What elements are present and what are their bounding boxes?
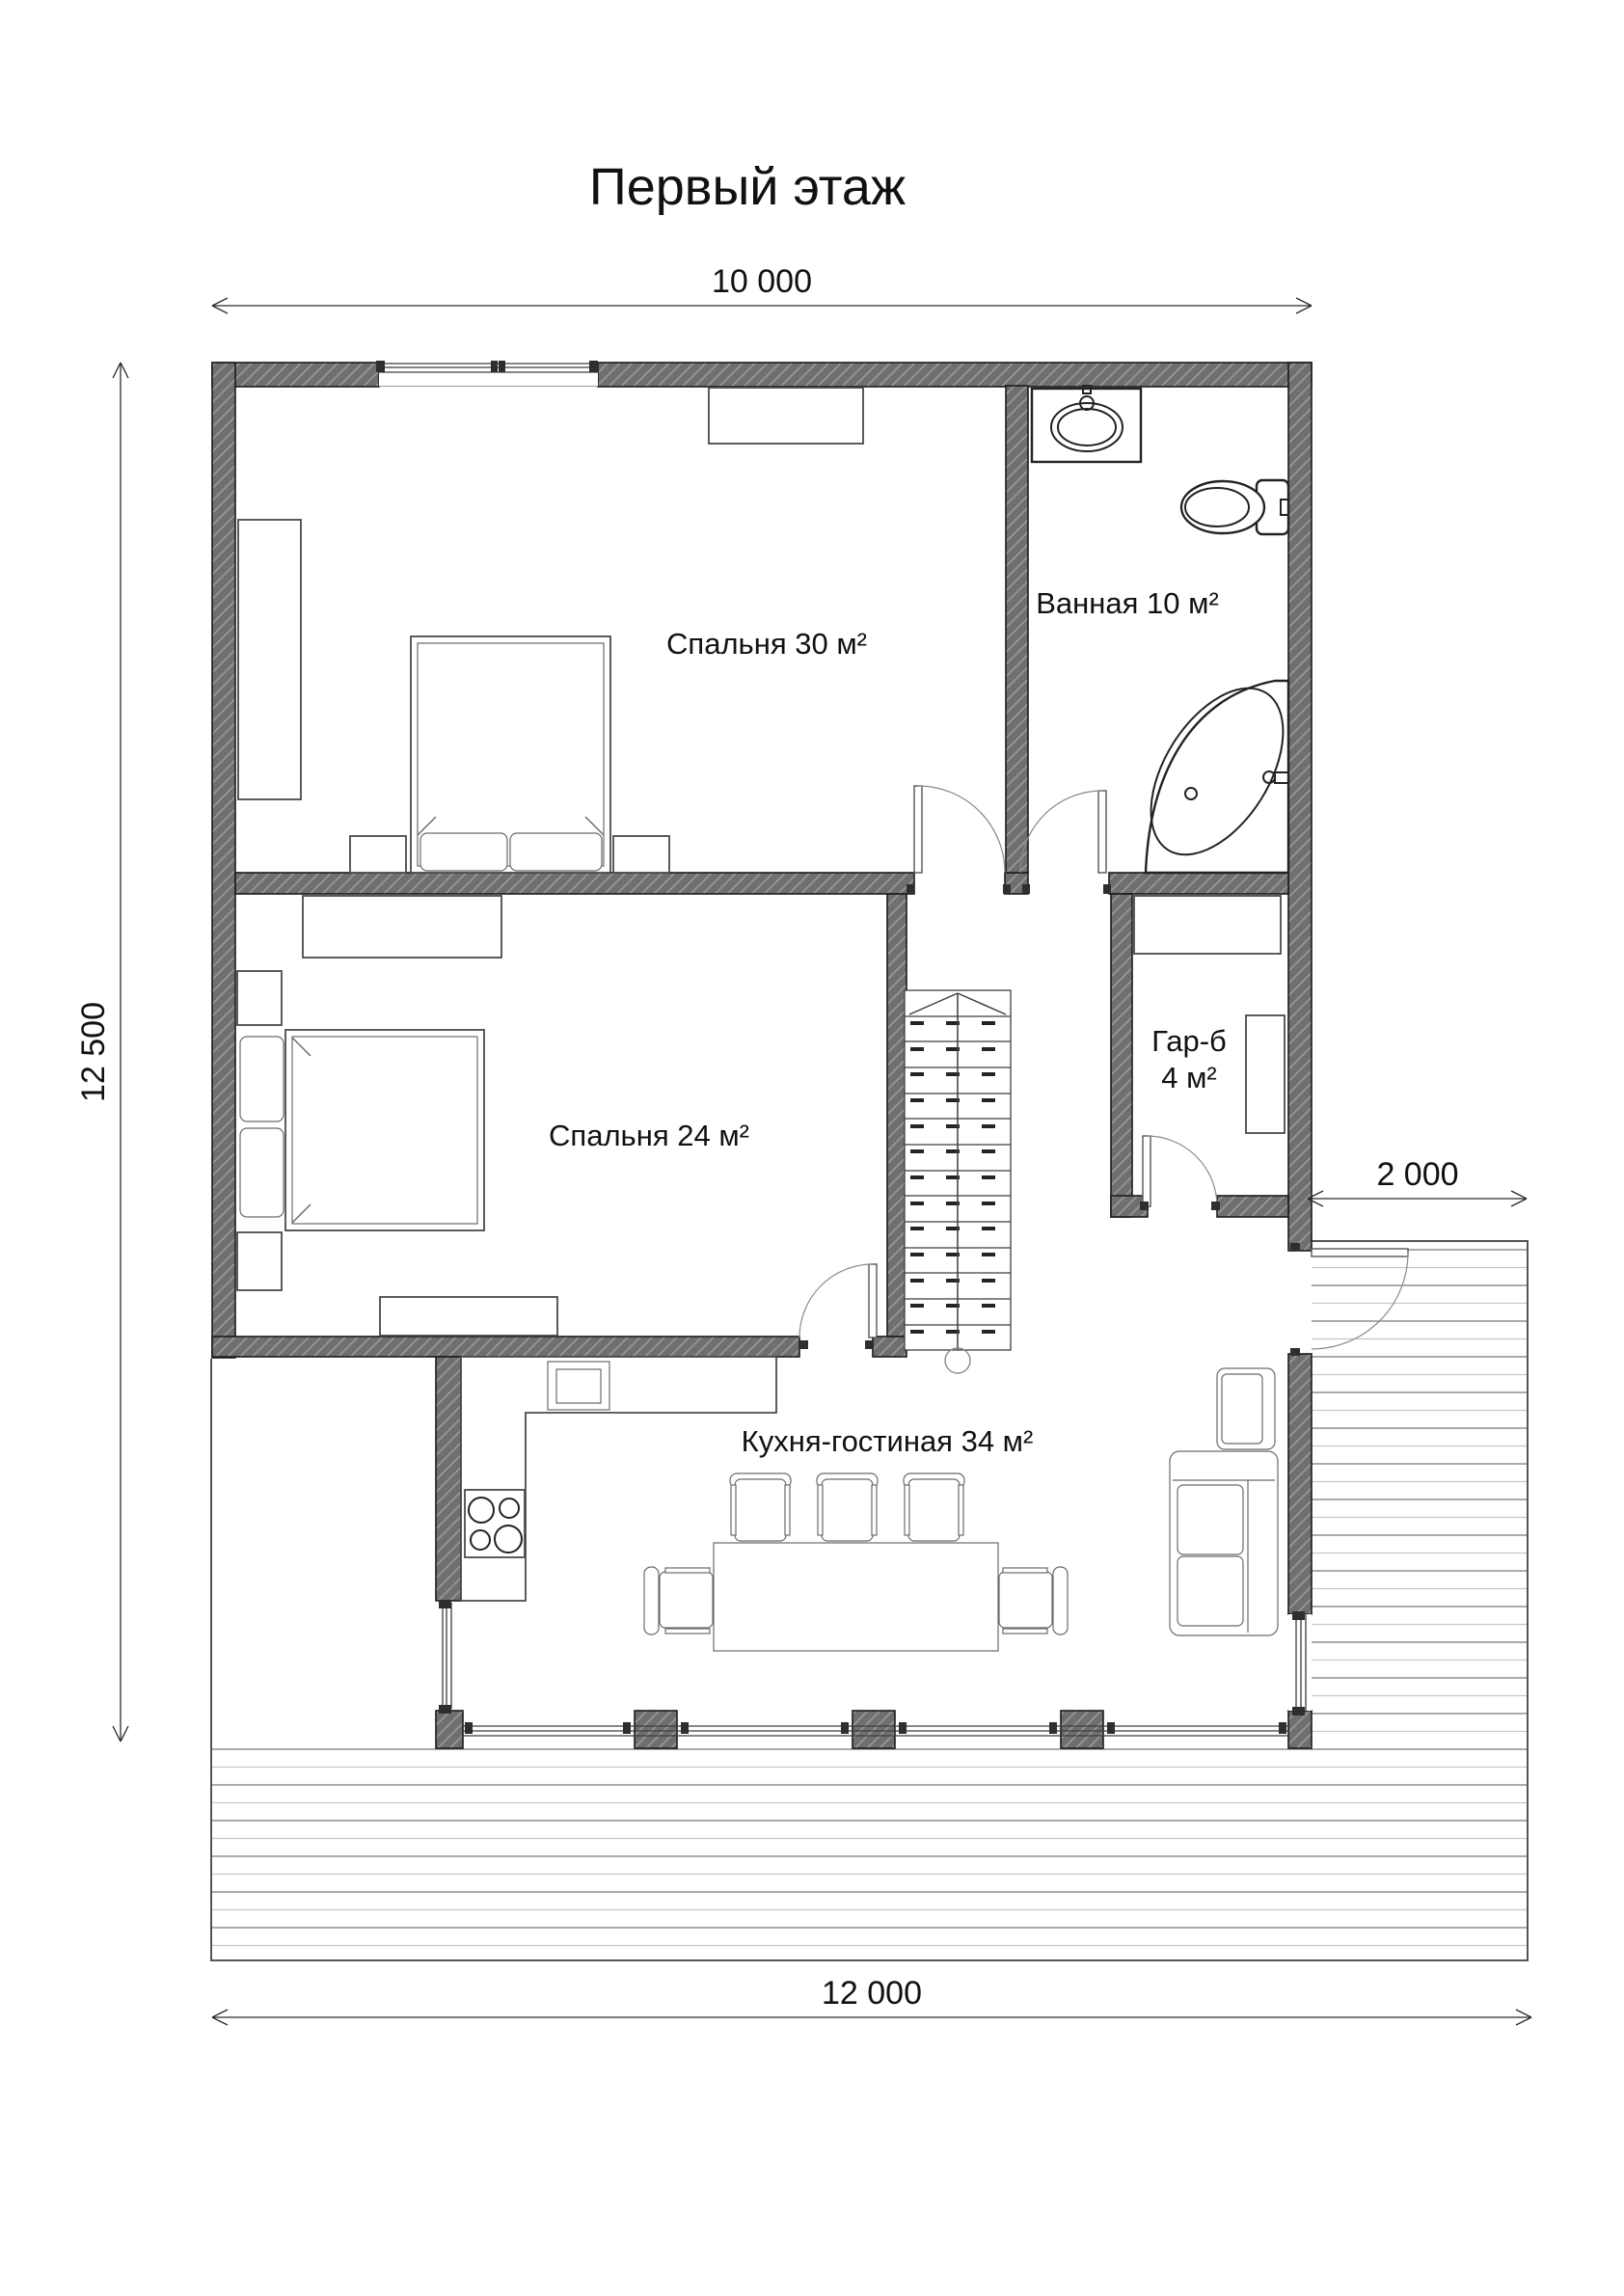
bedroom30-bed-icon (411, 636, 610, 873)
post-south-1 (635, 1711, 677, 1748)
window-right-icon (1288, 1611, 1312, 1715)
bathroom-toilet-icon (1181, 480, 1288, 534)
dining-table (714, 1543, 998, 1651)
wall-top-right (598, 363, 1312, 387)
chair-right (999, 1567, 1068, 1634)
wall-kitchen-top (212, 1337, 799, 1357)
bathroom-sink-icon (1032, 386, 1141, 462)
wall-right-upper (1288, 363, 1312, 1251)
floor-plan-drawing: Спальня 30 м² Ванная 10 м² Спальня 24 м²… (0, 0, 1624, 2296)
dimension-bottom: 12 000 (212, 1975, 1531, 2025)
kitchen-sink-icon (548, 1362, 609, 1410)
dimension-right: 2 000 (1308, 1156, 1527, 1206)
bedroom24-nightstand-top (237, 971, 282, 1025)
bedroom30-dresser (709, 388, 863, 444)
post-terrace-corner (436, 1711, 463, 1748)
wardrobe-shelf-top (1134, 896, 1281, 954)
wall-hall-wardrobe (1111, 894, 1132, 1217)
sofa-icon (1170, 1451, 1278, 1635)
chair-top-2 (817, 1473, 878, 1541)
bedroom24-dresser (380, 1297, 557, 1336)
wall-right-lower (1288, 1354, 1312, 1614)
window-top-icon (376, 361, 598, 387)
post-south-2 (853, 1711, 895, 1748)
wall-left (212, 363, 235, 1358)
chair-top-1 (730, 1473, 791, 1541)
post-south-3 (1061, 1711, 1103, 1748)
stairs (905, 990, 1011, 1373)
dimension-left: 12 500 (75, 363, 128, 1742)
room-label-wardrobe-1: Гар-б (1151, 1024, 1227, 1058)
dimension-top: 10 000 (212, 263, 1312, 313)
bedroom24-nightstand-bottom (237, 1232, 282, 1290)
room-label-kitchen: Кухня-гостиная 34 м² (742, 1424, 1034, 1458)
wall-right-corner-post (1288, 1711, 1312, 1748)
wall-kitchen-top-stub (873, 1337, 907, 1357)
wardrobe-shelf-right (1246, 1015, 1285, 1133)
wall-top-left (212, 363, 379, 387)
terrace-bottom (436, 1748, 1529, 1961)
page-title: Первый этаж (589, 158, 906, 216)
dim-right-value: 2 000 (1376, 1156, 1458, 1193)
stove-icon (465, 1490, 525, 1557)
bedroom24-wardrobe (303, 896, 501, 958)
chair-left (644, 1567, 713, 1634)
bedroom30-nightstand-right (613, 836, 669, 873)
room-label-wardrobe-2: 4 м² (1161, 1061, 1217, 1094)
wall-terrace-kitchen (436, 1357, 461, 1601)
room-label-bedroom30: Спальня 30 м² (666, 627, 867, 661)
dim-left-value: 12 500 (75, 1002, 112, 1102)
wall-bedroom30-bathroom (1006, 386, 1028, 873)
terrace-right (1308, 1240, 1529, 1748)
room-label-bathroom: Ванная 10 м² (1036, 586, 1219, 620)
dim-top-value: 10 000 (712, 263, 812, 300)
wall-wardrobe-bottom-right (1217, 1196, 1288, 1217)
wall-mid-horizontal-right (1109, 873, 1288, 894)
wall-bedroom24-stairs (887, 894, 907, 1337)
chair-top-3 (904, 1473, 964, 1541)
bedroom24-bed-icon (240, 1030, 484, 1230)
window-terrace-left-icon (436, 1600, 461, 1714)
armchair-icon (1217, 1368, 1275, 1449)
wall-mid-horizontal-left (235, 873, 914, 894)
room-label-bedroom24: Спальня 24 м² (549, 1119, 749, 1152)
dim-bottom-value: 12 000 (822, 1975, 922, 2012)
floor-plan-page: Спальня 30 м² Ванная 10 м² Спальня 24 м²… (0, 0, 1624, 2296)
bedroom30-wardrobe (238, 520, 301, 799)
bedroom30-nightstand-left (350, 836, 406, 873)
